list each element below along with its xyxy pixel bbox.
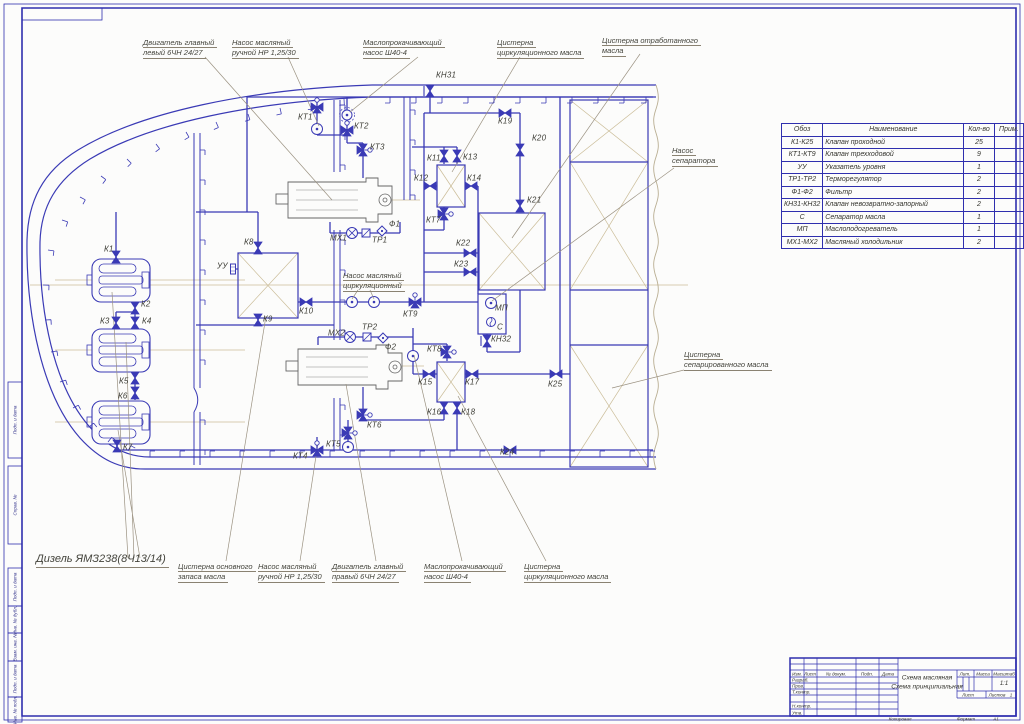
frame-tick <box>600 451 605 457</box>
frame-tick <box>275 108 281 115</box>
frame-tick <box>123 159 131 167</box>
frame-tick <box>270 451 275 457</box>
symbol-КТ2 <box>341 121 353 136</box>
frame-tick <box>200 240 205 245</box>
component-label-КТ5: КТ5 <box>326 440 341 449</box>
frame-tick <box>330 451 335 457</box>
parts-table-cell: Указатель уровня <box>823 161 964 174</box>
tb-listov-value: 1 <box>1010 692 1013 697</box>
component-label-КТ9: КТ9 <box>403 310 418 319</box>
parts-table-cell: Сепаратор масла <box>823 211 964 224</box>
tb-row-prov: Пров. <box>792 684 804 689</box>
frame-tick <box>463 97 468 103</box>
component-label-К19: К19 <box>498 117 512 126</box>
symbol-К5 <box>131 372 139 384</box>
frame-tick <box>410 140 415 145</box>
symbol-К13 <box>453 150 461 162</box>
callout-text: Насос <box>672 146 696 156</box>
symbol-МХ2 <box>345 332 356 343</box>
frame-tick <box>210 451 215 457</box>
parts-table-cell: Клапан невозвратно-запорный <box>823 199 964 212</box>
parts-table-cell: КТ1-КТ9 <box>782 149 823 162</box>
symbol-КТ9 <box>409 293 421 308</box>
outer-border <box>4 4 1020 720</box>
pipework <box>116 86 653 450</box>
frame-tick <box>60 220 67 227</box>
component-label-К14: К14 <box>467 174 481 183</box>
callout-text: насос Ш40-4 <box>424 572 471 582</box>
frame-tick <box>200 330 205 335</box>
parts-table-cell <box>994 199 1023 212</box>
frame-tick <box>437 97 442 103</box>
component-label-К18: К18 <box>461 408 475 417</box>
symbol-КН31 <box>424 85 434 97</box>
callout-label: Дизель ЯМЗ238(8Ч13/14) <box>36 553 169 568</box>
tb-col-data: Дата <box>882 671 894 676</box>
frame-tick <box>200 270 205 275</box>
symbol-К21 <box>516 200 524 212</box>
hand-pump-top <box>312 124 323 135</box>
frame-column-label: Инв. № дубл. <box>13 605 18 633</box>
component-label-С: С <box>497 323 503 332</box>
callout-label: Цистернациркуляционного масла <box>524 562 611 583</box>
component-label-КТ6: КТ6 <box>367 421 382 430</box>
callout-text: сепаратора <box>672 156 718 166</box>
component-label-К24: К24 <box>500 448 514 457</box>
callout-text: Дизель ЯМЗ238(8Ч13/14) <box>36 553 169 568</box>
symbol-К25 <box>550 370 562 378</box>
parts-table-cell: УУ <box>782 161 823 174</box>
symbol-К4 <box>131 317 139 329</box>
frame-column-label: Подп. и дата <box>13 406 18 435</box>
tb-row-nkontr: Н.контр. <box>792 703 811 708</box>
component-label-МП: МП <box>495 304 508 313</box>
tb-format-label: Формат <box>957 717 975 722</box>
symbol-К7 <box>113 440 121 452</box>
corner-stamp-box <box>22 8 102 20</box>
inner-frame <box>22 8 1016 716</box>
circulation-pump-1 <box>347 297 358 308</box>
symbol-УУ <box>231 264 236 274</box>
tb-col-izm: Изм. <box>792 671 802 676</box>
parts-table-cell: Фильтр <box>823 186 964 199</box>
break-line <box>654 85 659 469</box>
frame-tick <box>200 450 205 455</box>
symbol-К10 <box>300 298 312 306</box>
component-label-К23: К23 <box>454 260 468 269</box>
frame-tick <box>340 105 345 110</box>
frame-column-label: Взам. инв. № <box>13 633 18 661</box>
parts-table-cell: 2 <box>964 174 994 187</box>
tb-row-tkontr: Т.контр. <box>792 690 811 695</box>
frame-tick <box>182 132 189 140</box>
component-label-Ф2: Ф2 <box>385 343 396 352</box>
tb-lit: Лит. <box>960 671 971 676</box>
parts-table-cell: Клапан проходной <box>823 136 964 149</box>
frame-tick <box>515 97 520 103</box>
frame-tick <box>200 420 205 425</box>
frame-tick <box>200 300 205 305</box>
symbol-К3 <box>112 317 120 329</box>
callout-text: Насос масляный <box>343 271 404 281</box>
parts-table-cell <box>994 236 1023 249</box>
parts-table-cell <box>994 186 1023 199</box>
parts-table-cell: Клапан трехходовой <box>823 149 964 162</box>
parts-table-cell: МХ1-МХ2 <box>782 236 823 249</box>
callout-text: Двигатель главный <box>332 562 406 572</box>
symbol-ТР2 <box>363 333 371 341</box>
machinery <box>87 98 497 453</box>
tb-list: Лист <box>962 692 974 697</box>
frame-tick <box>360 451 365 457</box>
frame-tick <box>180 451 185 457</box>
callout-text: сепарированного масла <box>684 360 772 370</box>
parts-table-header-cell: Прим. <box>994 124 1023 137</box>
symbol-К9 <box>254 314 262 326</box>
callout-label: Насос масляныйручной НР 1,25/30 <box>232 38 299 59</box>
tb-kopiroval: Копировал <box>889 717 912 722</box>
symbol-К18 <box>453 402 461 414</box>
component-label-К8: К8 <box>244 238 254 247</box>
parts-table-cell: 1 <box>964 211 994 224</box>
tb-masshtab: Масштаб <box>993 671 1014 676</box>
frame-tick <box>211 122 218 130</box>
component-label-УУ: УУ <box>217 262 228 271</box>
component-label-ТР2: ТР2 <box>362 323 377 332</box>
component-label-КТ8: КТ8 <box>427 345 442 354</box>
parts-table-cell: 25 <box>964 136 994 149</box>
leader-lines <box>112 54 684 561</box>
diesel-2 <box>87 329 150 372</box>
parts-table-cell: 1 <box>964 224 994 237</box>
frame-tick <box>200 360 205 365</box>
diesel-1 <box>87 259 150 302</box>
frame-tick <box>152 144 160 152</box>
callout-text: Цистерна <box>684 350 723 360</box>
frame-tick <box>570 451 575 457</box>
component-label-КТ3: КТ3 <box>370 143 385 152</box>
symbol-К20 <box>516 144 524 156</box>
frame-tick <box>200 180 205 185</box>
component-label-К17: К17 <box>465 378 479 387</box>
frame-column-label: Справ. № <box>13 495 18 516</box>
tb-scale-value: 1:1 <box>1000 681 1008 687</box>
callout-text: Цистерна основного <box>178 562 256 572</box>
tb-col-list: Лист <box>804 671 816 676</box>
symbol-К2 <box>131 302 139 314</box>
callout-text: запаса масла <box>178 572 228 582</box>
parts-table-cell <box>994 174 1023 187</box>
symbol-КН32 <box>481 335 491 347</box>
callout-text: Цистерна <box>497 38 536 48</box>
separated-oil-tanks <box>570 100 648 467</box>
callout-text: циркуляционного масла <box>497 48 584 58</box>
parts-table-cell: Ф1-Ф2 <box>782 186 823 199</box>
parts-table-cell <box>994 161 1023 174</box>
parts-list-table: ОбозНаименованиеКол-воПрим.К1-К25Клапан … <box>781 123 1024 249</box>
callout-text: циркуляционный <box>343 281 405 291</box>
frame-tick <box>78 197 86 204</box>
parts-table-header-cell: Обоз <box>782 124 823 137</box>
frame-tick <box>410 195 415 200</box>
callout-text: левый 6ЧН 24/27 <box>143 48 206 58</box>
callout-text: Насос масляный <box>258 562 319 572</box>
component-label-К21: К21 <box>527 196 541 205</box>
symbol-МХ1 <box>347 228 358 239</box>
diesel-3 <box>87 401 150 444</box>
frame-tick <box>200 150 205 155</box>
component-label-КН31: КН31 <box>436 71 456 80</box>
parts-table-cell: ТР1-ТР2 <box>782 174 823 187</box>
parts-table-cell <box>994 211 1023 224</box>
symbol-Ф1 <box>377 226 387 236</box>
tb-listov: Листов <box>989 692 1006 697</box>
component-label-К11: К11 <box>427 154 441 163</box>
component-label-КТ7: КТ7 <box>426 216 441 225</box>
frame-tick <box>411 97 416 103</box>
component-label-К25: К25 <box>548 380 562 389</box>
component-label-К9: К9 <box>263 315 273 324</box>
parts-table-header-cell: Кол-во <box>964 124 994 137</box>
drawing-title-line1: Схема масляная <box>902 675 952 682</box>
frame-tick <box>43 285 49 290</box>
main-engine-left <box>276 178 392 222</box>
callout-text: Насос масляный <box>232 38 293 48</box>
component-label-К16: К16 <box>427 408 441 417</box>
parts-table-cell <box>994 149 1023 162</box>
component-label-К7: К7 <box>123 443 133 452</box>
callout-label: Насоссепаратора <box>672 146 718 167</box>
hand-pump-bottom <box>343 442 354 453</box>
component-label-К10: К10 <box>299 307 313 316</box>
frame-tick <box>150 451 155 457</box>
symbol-КТ8 <box>441 346 456 358</box>
frame-tick <box>340 405 345 410</box>
callout-text: насос Ш40-4 <box>363 48 410 58</box>
parts-table-cell: МП <box>782 224 823 237</box>
component-label-К22: К22 <box>456 239 470 248</box>
component-label-МХ1: МХ1 <box>330 234 347 243</box>
component-label-К2: К2 <box>141 300 151 309</box>
symbol-К12 <box>424 182 436 190</box>
frame-tick <box>47 250 54 256</box>
callout-label: Двигатель главныйлевый 6ЧН 24/27 <box>143 38 217 59</box>
drawing-title-line2: Схема принципиальная <box>891 684 963 691</box>
frame-tick <box>98 176 106 184</box>
parts-table-cell: КН31-КН32 <box>782 199 823 212</box>
frame-tick <box>385 97 390 103</box>
symbol-К22 <box>464 249 476 257</box>
callout-text: Маслопрокачивающий <box>363 38 445 48</box>
oil-heater <box>487 318 496 327</box>
component-label-К6: К6 <box>118 392 128 401</box>
callout-text: Цистерна отработанного <box>602 36 701 46</box>
callout-text: Цистерна <box>524 562 563 572</box>
frame-tick <box>410 110 415 115</box>
frame-column-label: Подп. и дата <box>13 573 18 602</box>
parts-table-cell <box>994 224 1023 237</box>
valve-symbols-layer <box>112 85 562 456</box>
tb-row-razrab: Разраб. <box>792 678 809 683</box>
symbol-КТ6 <box>357 409 372 421</box>
callout-label: Цистернасепарированного масла <box>684 350 772 371</box>
callout-text: циркуляционного масла <box>524 572 611 582</box>
component-label-К15: К15 <box>418 378 432 387</box>
main-engine-right <box>286 345 402 389</box>
parts-table-cell: 2 <box>964 236 994 249</box>
callout-label: Двигатель главныйправый 6ЧН 24/27 <box>332 562 406 583</box>
tb-col-doc: № докум. <box>826 671 846 676</box>
callout-label: Цистерна основногозапаса масла <box>178 562 256 583</box>
callout-label: Маслопрокачивающийнасос Ш40-4 <box>424 562 506 583</box>
component-label-КТ1: КТ1 <box>298 113 313 122</box>
component-label-К4: К4 <box>142 317 152 326</box>
callout-label: Маслопрокачивающийнасос Ш40-4 <box>363 38 445 59</box>
parts-table-cell: С <box>782 211 823 224</box>
frame-tick <box>340 165 345 170</box>
parts-table-cell <box>994 136 1023 149</box>
callout-label: Цистернациркуляционного масла <box>497 38 584 59</box>
component-label-К13: К13 <box>463 153 477 162</box>
callout-label: Насос масляныйручной НР 1,25/30 <box>258 562 325 583</box>
tb-format-value: А1 <box>993 717 999 722</box>
callout-text: ручной НР 1,25/30 <box>258 572 325 582</box>
component-label-КН32: КН32 <box>491 335 511 344</box>
tb-row-utv: Утв. <box>792 710 802 715</box>
parts-table-cell: 2 <box>964 199 994 212</box>
component-label-К5: К5 <box>119 377 129 386</box>
component-label-ТР1: ТР1 <box>372 236 387 245</box>
component-label-МХ2: МХ2 <box>328 329 345 338</box>
symbol-ТР1 <box>362 229 370 237</box>
callout-text: масла <box>602 46 626 56</box>
parts-table-cell: 9 <box>964 149 994 162</box>
priming-pump-bottom <box>408 351 419 362</box>
parts-table-cell: К1-К25 <box>782 136 823 149</box>
callout-label: Цистерна отработанногомасла <box>602 36 701 57</box>
callout-text: Двигатель главный <box>143 38 217 48</box>
frame-tick <box>240 451 245 457</box>
component-label-КТ4: КТ4 <box>293 452 308 461</box>
frame-tick <box>630 451 635 457</box>
component-label-К3: К3 <box>100 317 110 326</box>
symbol-К6 <box>131 387 139 399</box>
symbol-КТ4 <box>311 441 323 456</box>
frame-column-label: Инв. № подл. <box>13 695 18 724</box>
component-label-К12: К12 <box>414 174 428 183</box>
symbol-К8 <box>254 242 262 254</box>
frame-tick <box>541 97 546 103</box>
parts-table-header-cell: Наименование <box>823 124 964 137</box>
callout-text: ручной НР 1,25/30 <box>232 48 299 58</box>
parts-table-cell: 2 <box>964 186 994 199</box>
tb-massa: Масса <box>976 671 990 676</box>
parts-table-cell: Маслоподогреватель <box>823 224 964 237</box>
frame-tick <box>450 451 455 457</box>
callout-label: Насос масляныйциркуляционный <box>343 271 405 292</box>
parts-table-cell: Масляный холодильник <box>823 236 964 249</box>
symbol-К14 <box>465 182 477 190</box>
callout-text: правый 6ЧН 24/27 <box>332 572 399 582</box>
frame-tick <box>540 451 545 457</box>
callout-text: Маслопрокачивающий <box>424 562 506 572</box>
frame-tick <box>480 451 485 457</box>
symbol-Ф2 <box>378 333 388 343</box>
drawing-canvas <box>0 0 1024 724</box>
component-label-К1: К1 <box>104 245 114 254</box>
component-label-Ф1: Ф1 <box>389 220 400 229</box>
component-label-К20: К20 <box>532 134 546 143</box>
parts-table-cell: 1 <box>964 161 994 174</box>
symbol-К23 <box>464 268 476 276</box>
frame-tick <box>390 451 395 457</box>
engineering-drawing-sheet: ОбозНаименованиеКол-воПрим.К1-К25Клапан … <box>0 0 1024 724</box>
frame-tick <box>420 451 425 457</box>
frame-column-label: Подп. и дата <box>13 665 18 694</box>
component-label-КТ2: КТ2 <box>354 122 369 131</box>
symbol-К11 <box>440 150 448 162</box>
parts-table-cell: Терморегулятор <box>823 174 964 187</box>
tb-col-podp: Подп. <box>861 671 873 676</box>
